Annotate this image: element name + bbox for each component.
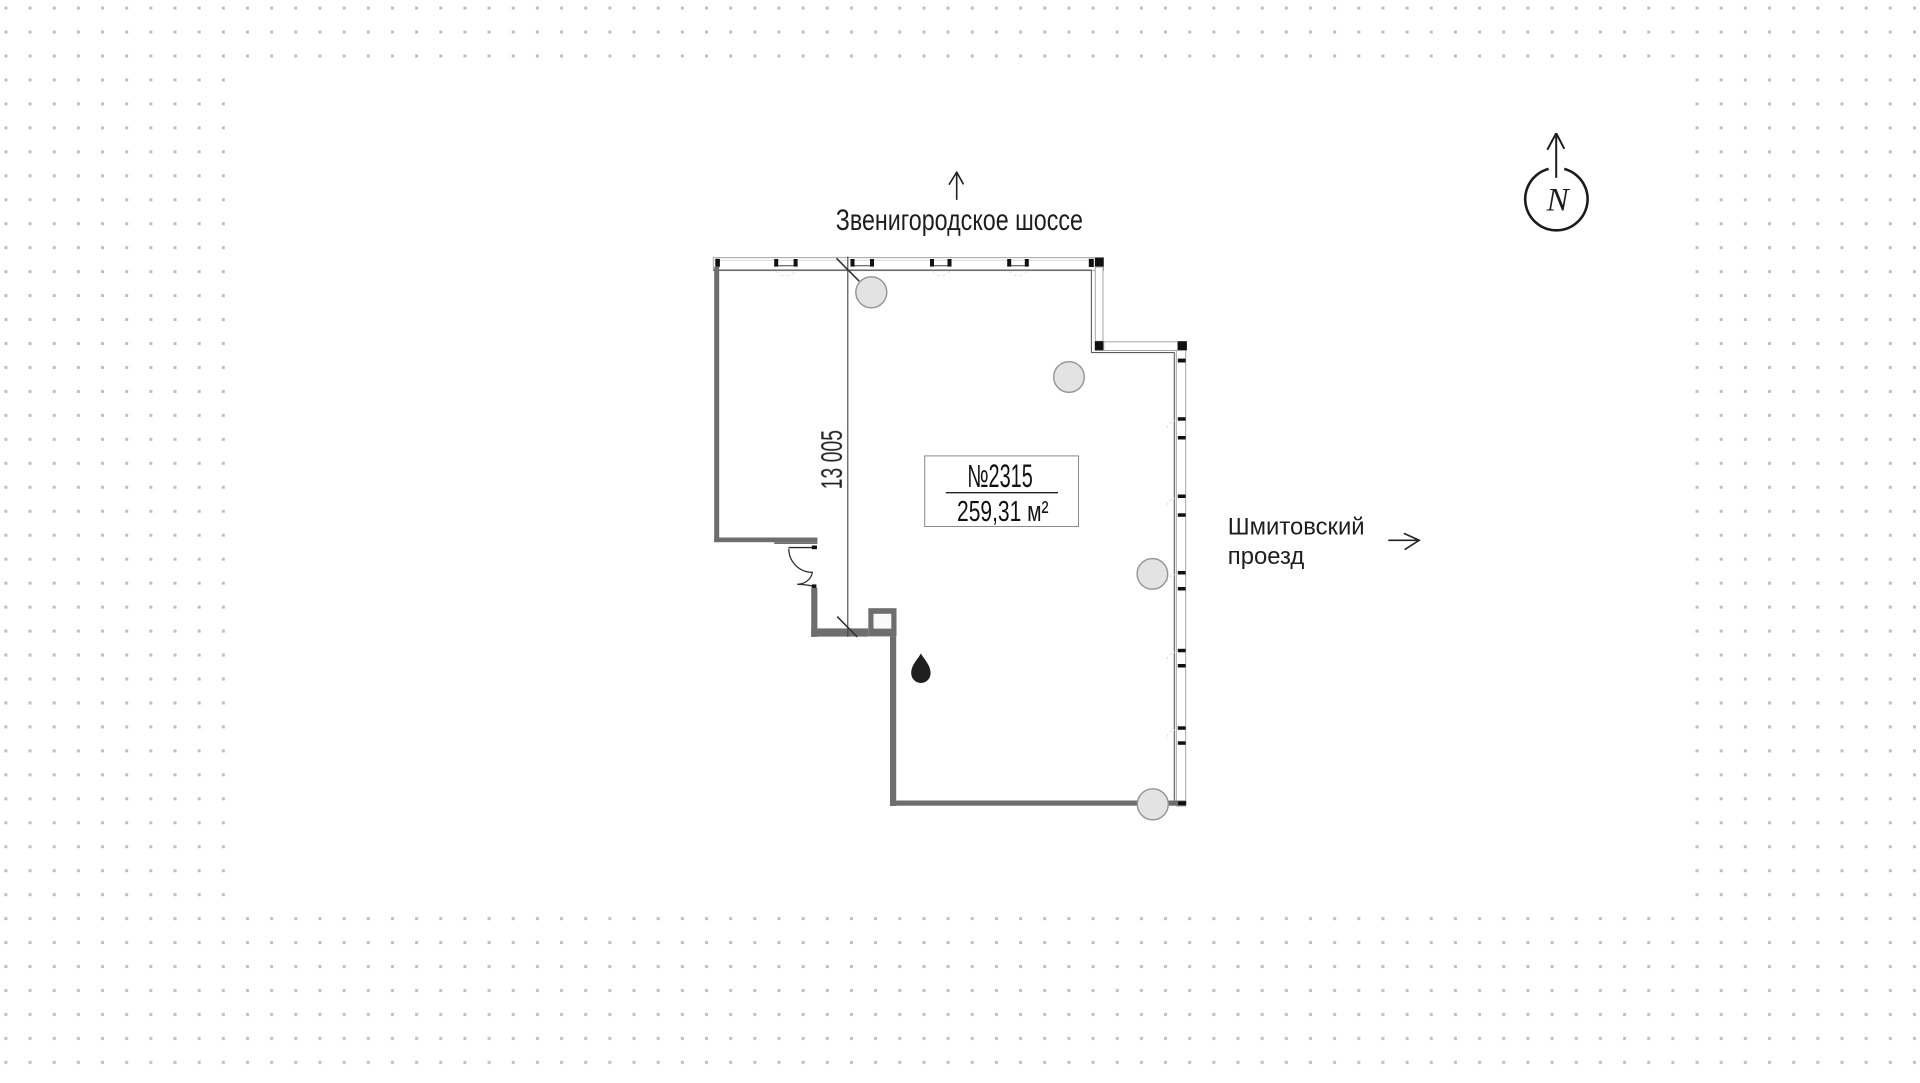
svg-text:N: N (1546, 183, 1571, 219)
svg-text:Звенигородское шоссе: Звенигородское шоссе (836, 204, 1083, 237)
svg-text:№2315: №2315 (967, 458, 1033, 494)
svg-text:259,31 м²: 259,31 м² (957, 496, 1049, 528)
svg-text:проезд: проезд (1228, 543, 1305, 570)
svg-text:Шмитовский: Шмитовский (1228, 514, 1365, 541)
svg-text:13 005: 13 005 (817, 430, 849, 489)
